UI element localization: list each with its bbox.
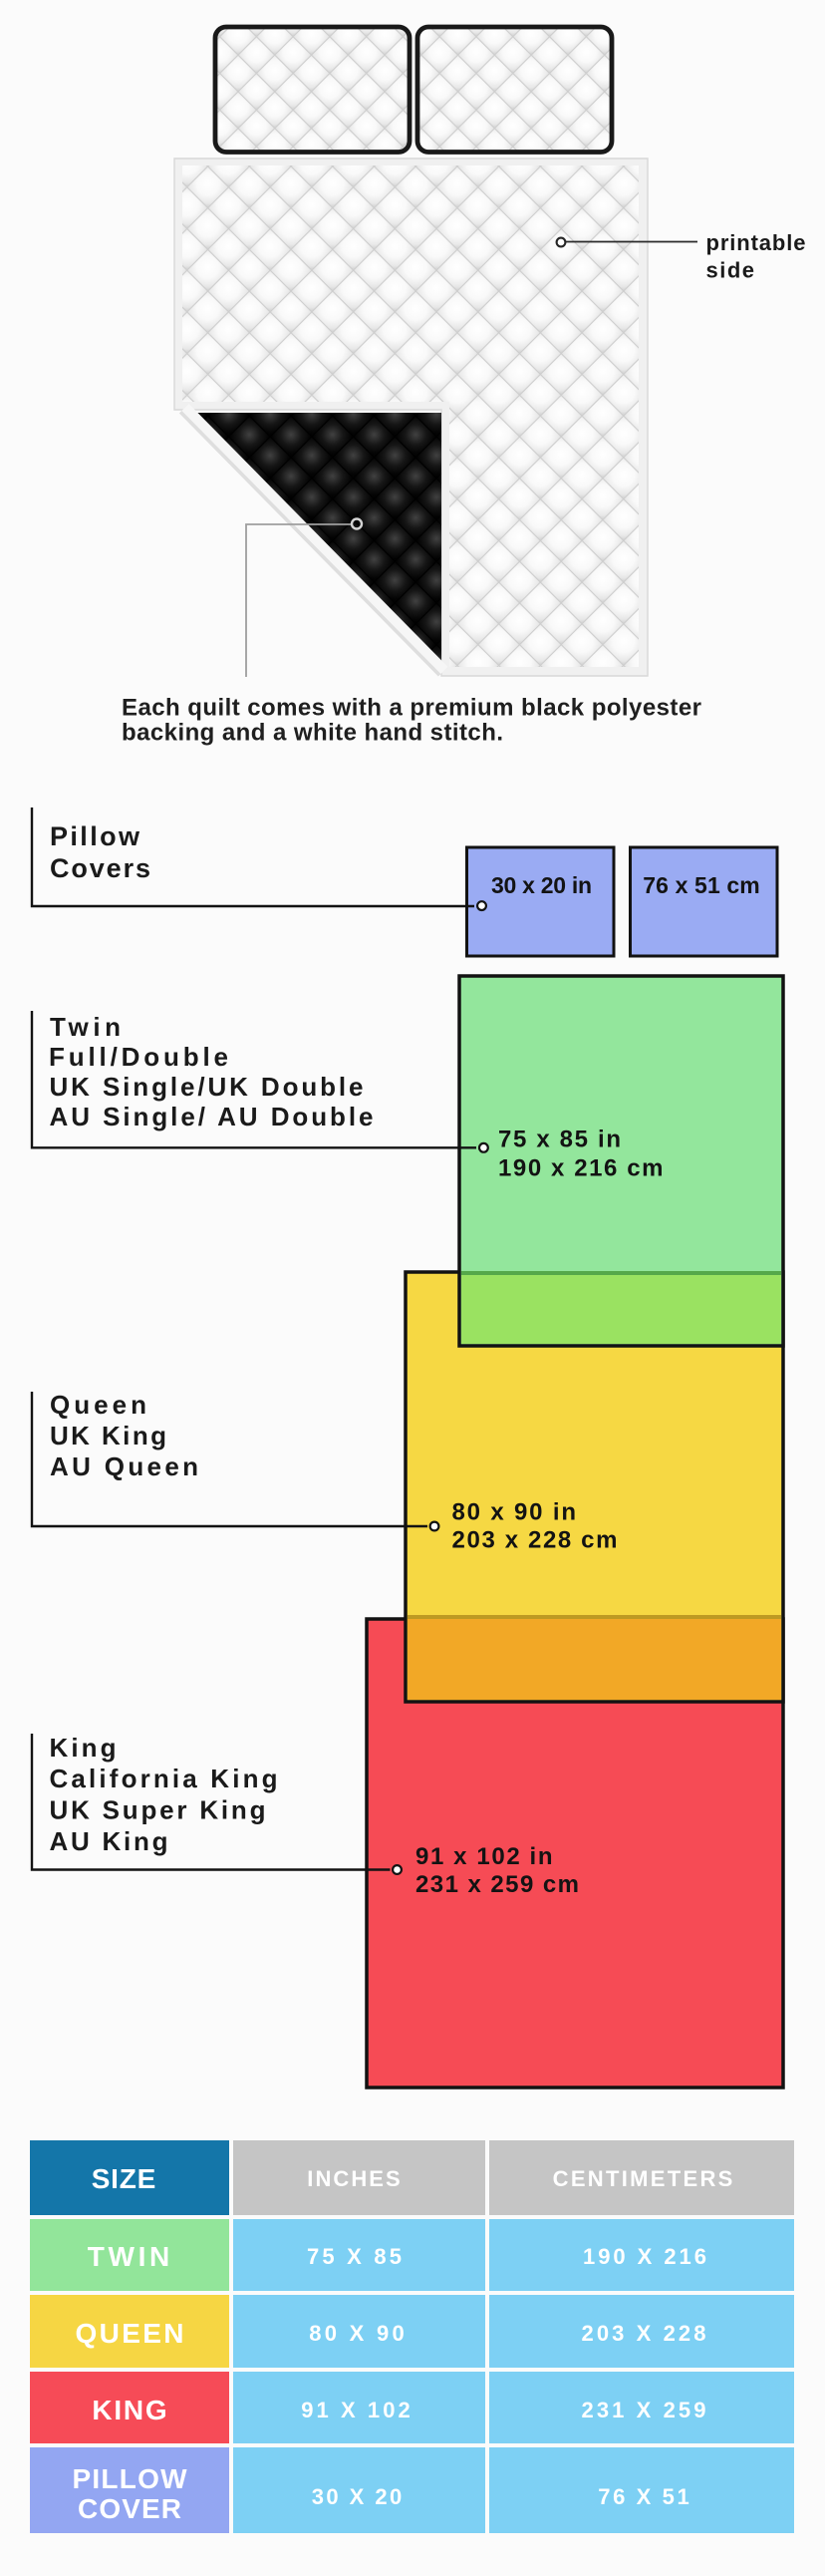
svg-text:King: King xyxy=(50,1733,117,1763)
svg-text:Queen: Queen xyxy=(50,1390,146,1420)
svg-text:Each quilt comes with a premiu: Each quilt comes with a premium black po… xyxy=(122,695,701,722)
svg-text:30 x 20 in: 30 x 20 in xyxy=(491,872,592,898)
svg-text:203 x 228 cm: 203 x 228 cm xyxy=(452,1527,618,1554)
svg-text:side: side xyxy=(706,258,755,283)
svg-text:Twin: Twin xyxy=(50,1012,121,1042)
svg-text:UK Single/UK Double: UK Single/UK Double xyxy=(50,1072,364,1102)
svg-text:PILLOW: PILLOW xyxy=(73,2463,188,2494)
svg-text:AU Single/ AU Double: AU Single/ AU Double xyxy=(50,1102,374,1131)
svg-text:75 x 85 in: 75 x 85 in xyxy=(498,1127,621,1153)
svg-text:Pillow: Pillow xyxy=(50,821,140,851)
svg-text:backing and a white hand stitc: backing and a white hand stitch. xyxy=(122,720,503,747)
svg-text:TWIN: TWIN xyxy=(88,2241,169,2272)
svg-text:190 X 216: 190 X 216 xyxy=(583,2244,706,2269)
svg-text:203 X 228: 203 X 228 xyxy=(582,2321,706,2346)
svg-text:76 x 51 cm: 76 x 51 cm xyxy=(643,872,760,898)
svg-text:Covers: Covers xyxy=(50,853,150,883)
svg-text:SIZE: SIZE xyxy=(92,2163,156,2194)
svg-text:190 x 216 cm: 190 x 216 cm xyxy=(498,1155,664,1182)
svg-text:California King: California King xyxy=(50,1764,278,1793)
svg-text:231 X 259: 231 X 259 xyxy=(582,2398,706,2422)
svg-text:AU King: AU King xyxy=(50,1826,168,1856)
svg-text:INCHES: INCHES xyxy=(307,2166,400,2191)
svg-text:Full/Double: Full/Double xyxy=(49,1042,228,1072)
svg-text:UK King: UK King xyxy=(50,1421,166,1450)
svg-text:QUEEN: QUEEN xyxy=(76,2318,184,2349)
svg-text:CENTIMETERS: CENTIMETERS xyxy=(553,2166,733,2191)
svg-text:KING: KING xyxy=(92,2395,166,2425)
svg-text:AU Queen: AU Queen xyxy=(50,1451,198,1481)
svg-text:printable: printable xyxy=(706,230,806,255)
svg-text:80 x 90 in: 80 x 90 in xyxy=(452,1499,577,1526)
svg-text:231 x 259 cm: 231 x 259 cm xyxy=(415,1871,579,1898)
svg-text:COVER: COVER xyxy=(78,2493,181,2524)
svg-text:91 x 102 in: 91 x 102 in xyxy=(415,1843,553,1870)
svg-text:UK Super King: UK Super King xyxy=(50,1795,266,1825)
